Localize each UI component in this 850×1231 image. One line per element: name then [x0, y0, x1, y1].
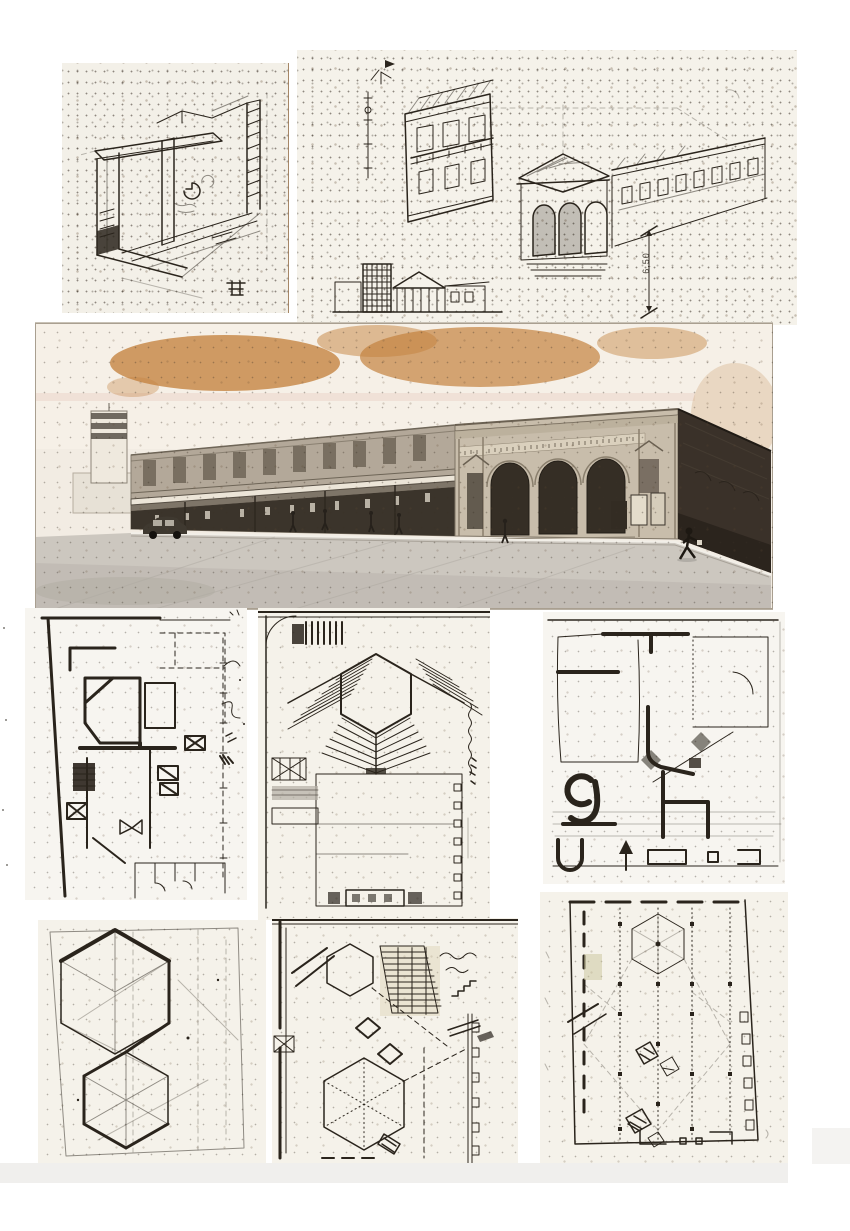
margin-specks: [0, 600, 12, 900]
hexagonal-plan-drawing: [272, 918, 518, 1165]
panel-plan-right: [543, 612, 785, 884]
axonometric-interior-sketch-drawing: [62, 63, 288, 313]
panel-plan-center: [258, 608, 490, 920]
structural-grid-plan-drawing: [540, 892, 788, 1165]
panel-perspective-sketch: 6,50: [297, 50, 797, 325]
panel-axonometric-sketch: [62, 63, 289, 313]
scan-footer-strip: [0, 1163, 788, 1183]
scanned-page: 6,50: [0, 0, 850, 1231]
scan-corner-patch: [812, 1128, 850, 1164]
stray-ink-specks: [0, 600, 12, 900]
panel-hexagon-study: [38, 920, 266, 1165]
panel-hexagonal-plan: [272, 918, 518, 1165]
overlapping-hexagons-drawing: [38, 920, 266, 1165]
street-photo-neoclassical-building: [35, 323, 773, 609]
panel-grid-plan: [540, 892, 788, 1165]
dimension-label: 6,50: [641, 252, 651, 274]
aerial-perspective-corner-building-drawing: [297, 50, 797, 325]
panel-street-photo: [35, 322, 773, 610]
amphitheater-plan-drawing: [258, 608, 490, 920]
freehand-plan-with-arrow-drawing: [543, 612, 785, 884]
